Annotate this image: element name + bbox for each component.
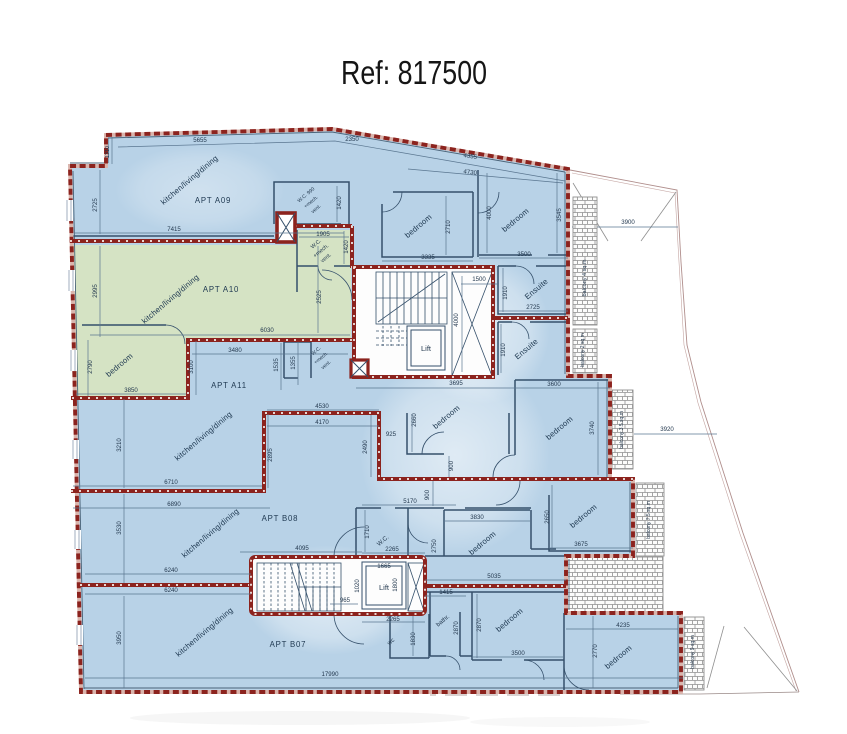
svg-text:2725: 2725 <box>526 304 540 311</box>
svg-text:7415: 7415 <box>167 226 181 233</box>
svg-text:Ref: 817500: Ref: 817500 <box>341 54 487 91</box>
svg-text:4170: 4170 <box>315 419 329 426</box>
svg-text:3900: 3900 <box>621 219 635 226</box>
svg-text:2525: 2525 <box>316 290 323 304</box>
svg-text:2660: 2660 <box>411 413 418 427</box>
svg-text:1910: 1910 <box>500 343 507 357</box>
svg-text:3480: 3480 <box>228 347 242 354</box>
svg-text:2870: 2870 <box>476 618 483 632</box>
svg-text:6240: 6240 <box>164 587 178 594</box>
svg-text:6030: 6030 <box>260 327 274 334</box>
svg-text:APT A09: APT A09 <box>195 196 231 205</box>
svg-text:APT A11: APT A11 <box>211 381 247 390</box>
svg-text:3500: 3500 <box>517 251 531 258</box>
svg-text:3950: 3950 <box>116 631 123 645</box>
svg-text:1415: 1415 <box>439 589 453 596</box>
svg-text:balcony 9 sq.m: balcony 9 sq.m <box>690 635 696 669</box>
svg-text:4000: 4000 <box>453 313 460 327</box>
svg-text:900: 900 <box>448 460 455 471</box>
svg-text:1310: 1310 <box>105 146 111 158</box>
svg-text:2790: 2790 <box>87 360 94 374</box>
svg-text:925: 925 <box>386 431 397 438</box>
svg-text:1800: 1800 <box>392 578 399 592</box>
svg-text:2265: 2265 <box>385 546 399 553</box>
svg-text:1905: 1905 <box>316 231 330 238</box>
svg-text:2770: 2770 <box>592 644 599 658</box>
svg-text:2895: 2895 <box>267 448 274 462</box>
svg-text:2265: 2265 <box>386 616 400 623</box>
svg-text:3545: 3545 <box>556 208 563 222</box>
svg-text:2870: 2870 <box>453 621 460 635</box>
svg-text:3830: 3830 <box>470 514 484 521</box>
svg-text:2750: 2750 <box>431 539 438 553</box>
svg-text:3100: 3100 <box>188 360 195 374</box>
svg-text:3500: 3500 <box>511 650 525 657</box>
svg-text:2710: 2710 <box>445 220 452 234</box>
svg-text:1910: 1910 <box>502 286 509 300</box>
svg-text:3695: 3695 <box>449 380 463 387</box>
svg-text:1020: 1020 <box>354 579 361 593</box>
svg-text:3335: 3335 <box>421 254 435 261</box>
svg-text:3850: 3850 <box>124 387 138 394</box>
svg-text:17990: 17990 <box>322 671 340 678</box>
svg-text:balcony 4 sq.m: balcony 4 sq.m <box>582 259 588 296</box>
svg-text:2490: 2490 <box>362 440 369 454</box>
svg-text:1420: 1420 <box>336 196 343 210</box>
svg-text:APT A10: APT A10 <box>203 285 239 294</box>
svg-text:4235: 4235 <box>616 622 630 629</box>
svg-text:3920: 3920 <box>660 426 674 433</box>
svg-text:2725: 2725 <box>92 198 99 212</box>
svg-text:APT B07: APT B07 <box>270 640 307 649</box>
svg-text:4095: 4095 <box>295 545 309 552</box>
svg-text:5655: 5655 <box>193 137 207 144</box>
svg-text:1830: 1830 <box>410 632 417 646</box>
svg-text:balcony 3.5 sq.m: balcony 3.5 sq.m <box>619 411 625 449</box>
svg-text:3675: 3675 <box>574 541 588 548</box>
svg-text:4530: 4530 <box>315 403 329 410</box>
svg-text:2650: 2650 <box>544 510 551 524</box>
svg-text:3530: 3530 <box>116 521 123 535</box>
svg-text:3600: 3600 <box>547 381 561 388</box>
svg-text:2350: 2350 <box>345 136 359 143</box>
svg-text:2995: 2995 <box>92 284 99 298</box>
svg-text:1420: 1420 <box>343 240 350 254</box>
svg-text:6240: 6240 <box>164 567 178 574</box>
svg-text:5035: 5035 <box>487 573 501 580</box>
svg-text:1355: 1355 <box>290 356 297 370</box>
svg-text:965: 965 <box>340 597 351 604</box>
svg-text:Lift: Lift <box>421 344 432 353</box>
svg-text:6890: 6890 <box>167 501 181 508</box>
svg-text:1535: 1535 <box>273 358 280 372</box>
svg-text:Lift: Lift <box>379 583 390 592</box>
svg-text:1710: 1710 <box>364 525 371 539</box>
svg-text:1665: 1665 <box>377 563 391 570</box>
svg-text:900: 900 <box>424 489 431 500</box>
svg-text:balcony 7.5 sq.m: balcony 7.5 sq.m <box>646 501 652 539</box>
svg-text:4000: 4000 <box>486 206 493 220</box>
svg-text:balcony 2 sq.m: balcony 2 sq.m <box>580 333 586 367</box>
svg-text:1500: 1500 <box>472 276 486 283</box>
svg-text:3210: 3210 <box>116 438 123 452</box>
svg-text:3740: 3740 <box>589 421 596 435</box>
svg-text:APT B08: APT B08 <box>262 514 299 523</box>
svg-text:5170: 5170 <box>403 498 417 505</box>
svg-text:6710: 6710 <box>164 479 178 486</box>
